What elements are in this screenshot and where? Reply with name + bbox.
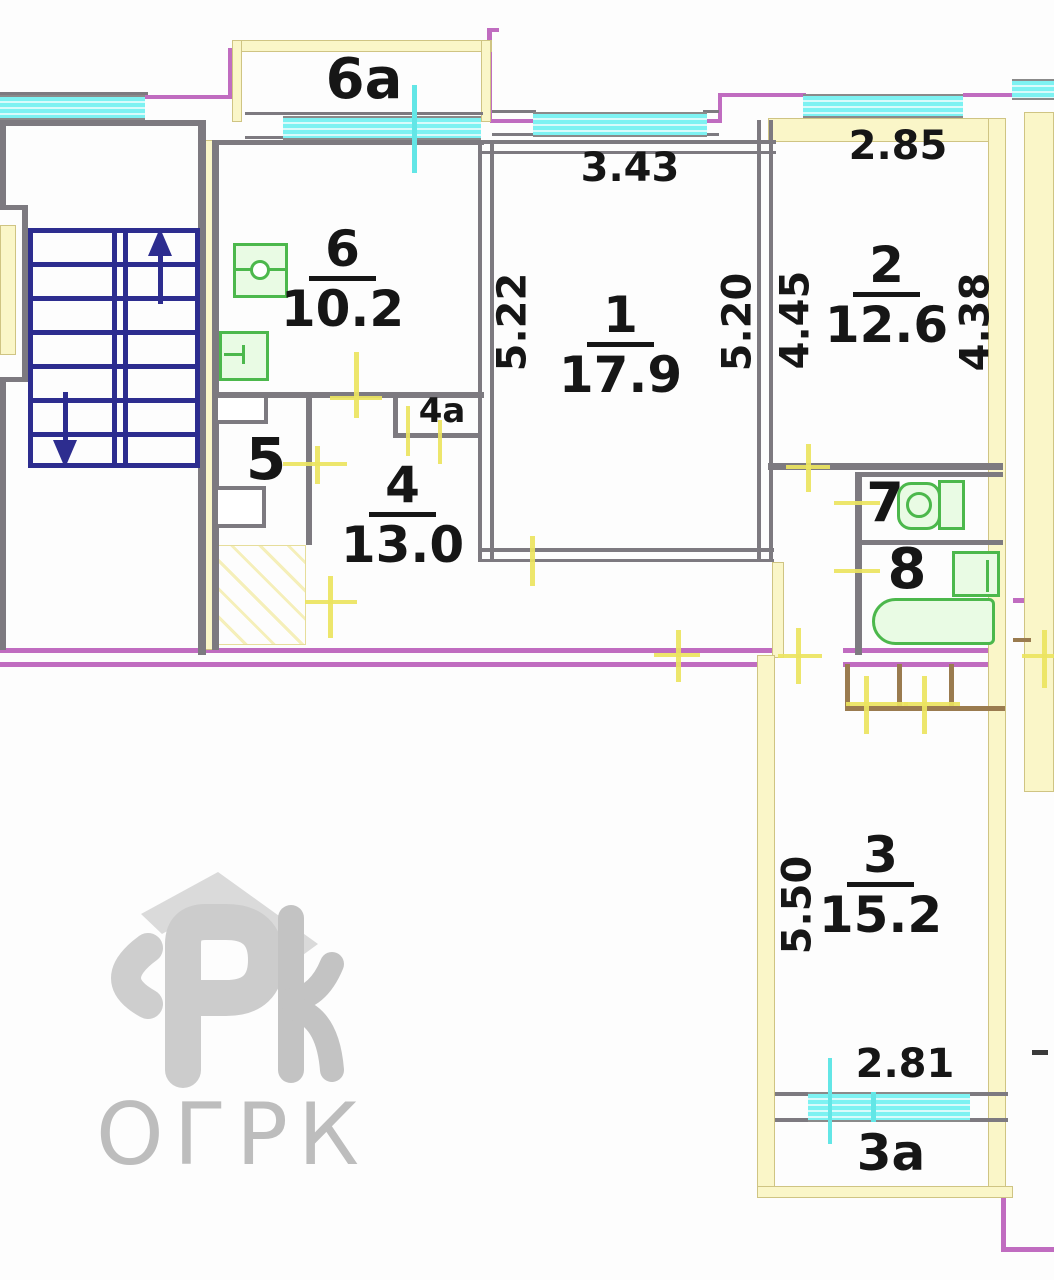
wall-band [481,40,491,122]
wall-segment [306,392,312,545]
bathtub-icon [872,598,995,645]
room-3-number: 3 [847,828,914,887]
wall-segment [478,140,776,144]
door-mark [530,536,535,586]
door-mark [330,396,382,400]
closet-line [1013,638,1031,642]
window-band [0,95,145,120]
dim-room2-right: 4.38 [915,262,1035,382]
balcony-6a-label: 6а [318,52,410,108]
window-band [803,94,963,118]
window-tick [412,85,417,173]
door-mark [778,654,822,658]
window-sill-band [0,225,16,355]
dim-room2-width: 2.85 [838,126,958,166]
closet-hatch [214,545,306,645]
watermark-logo [86,852,346,1092]
window-tick [871,1092,876,1122]
wall-segment [492,110,536,113]
room-1-number: 1 [587,288,654,347]
window-band [1012,79,1054,100]
closet-box [214,394,268,424]
cistern-icon [938,480,965,530]
outer-wall-line [718,93,806,97]
wall-segment [492,133,536,136]
wall-band [1024,112,1054,792]
outer-wall-line [718,93,722,121]
door-mark [786,465,830,469]
wall-band [757,1186,1013,1198]
kitchen-sink-icon-line [224,353,244,356]
wall-segment [0,120,206,126]
wall-segment [478,559,774,562]
outer-wall-line [145,95,233,99]
kitchen-sink-icon-line [242,345,245,364]
room-7-label: 7 [864,476,906,530]
door-mark [354,352,359,418]
outer-wall-line [843,662,1005,667]
door-mark [1022,654,1054,658]
room-6-number: 6 [309,222,376,281]
outer-wall-line [843,648,1005,653]
wall-segment [212,140,484,145]
balcony-3a-label: 3а [848,1128,934,1178]
washbasin-icon [952,551,1000,597]
dim-room2-left: 4.45 [735,260,855,380]
stove-icon-burner [250,260,270,280]
wall-segment [855,472,862,655]
dim-room1-width: 3.43 [570,148,690,188]
room-6-label: 6 10.2 [270,222,415,337]
room-6-area: 10.2 [270,281,415,337]
stairs-down-arrow [53,440,77,468]
wall-segment [245,136,285,139]
door-mark [328,576,333,638]
wall-segment [245,112,483,115]
outer-wall-line [1001,1247,1054,1252]
washbasin-icon-line [986,560,989,592]
watermark-text: ОГРК [96,1092,396,1178]
window-band [533,112,707,137]
room-8-label: 8 [886,542,928,598]
stairs-arrow-stem [63,392,68,444]
door-mark [315,446,320,484]
window-cap [775,1092,810,1096]
wall-band [772,562,784,658]
door-mark [654,653,700,657]
room-4-number: 4 [369,458,436,517]
door-mark [846,702,908,706]
stairs-arrow-stem [158,252,163,304]
toilet-icon-bowl [906,492,932,518]
wall-segment [478,548,774,552]
floorplan-canvas: ОГРК [0,0,1054,1280]
dim-room1-left: 5.22 [452,262,572,382]
staircase [28,228,200,468]
door-mark [1042,630,1047,688]
wall-segment [393,392,398,438]
room-5-label: 5 [236,430,296,488]
wall-segment [0,380,6,650]
dim-balcony3a-width: 2.81 [845,1044,965,1084]
wall-band [232,40,242,122]
stairs-center-rail [112,228,128,463]
door-mark [305,600,357,604]
closet-4a-label: 4а [410,394,474,428]
door-mark [904,702,960,706]
window-band [808,1092,970,1122]
door-mark [834,569,880,573]
window-cap [968,1092,1008,1096]
wall-segment [858,540,1003,545]
window-cap [968,1118,1008,1122]
dim-room3-height: 5.50 [737,845,857,965]
window-band [283,116,481,140]
tick-mark [1032,1050,1048,1055]
room-4-label: 4 13.0 [330,458,475,573]
wall-segment [0,122,6,208]
outer-wall-line [0,662,760,667]
window-cap [775,1118,810,1122]
room-2-number: 2 [853,238,920,297]
room-4-area: 13.0 [330,517,475,573]
window-tick [828,1058,832,1144]
